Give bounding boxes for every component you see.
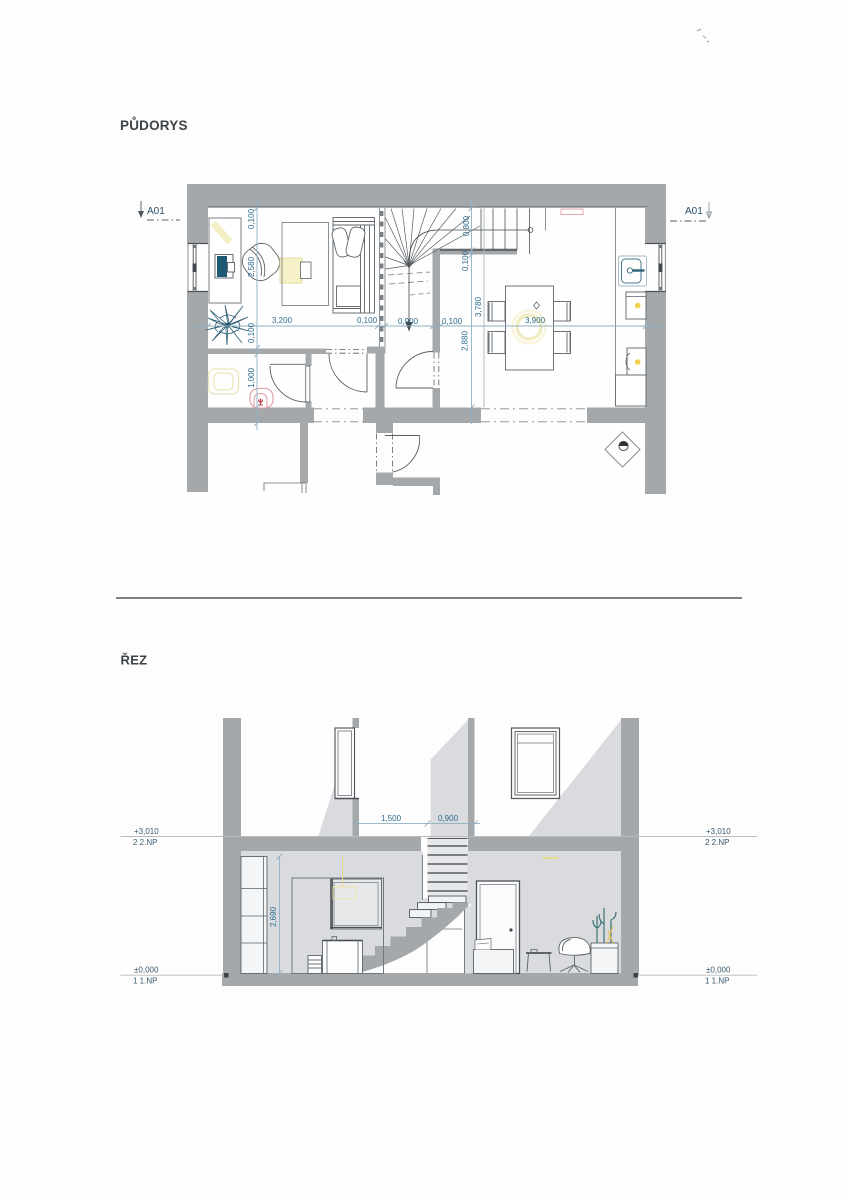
svg-text:A01: A01: [147, 206, 165, 217]
svg-text:0,100: 0,100: [247, 208, 256, 229]
svg-text:PŮDORYS: PŮDORYS: [120, 117, 188, 133]
svg-text:1 1.NP: 1 1.NP: [133, 977, 157, 986]
svg-text:1 1.NP: 1 1.NP: [705, 977, 729, 986]
svg-text:+3,010: +3,010: [706, 827, 731, 836]
svg-text:+3,010: +3,010: [134, 827, 159, 836]
svg-text:1,000: 1,000: [247, 367, 256, 388]
svg-text:0,900: 0,900: [398, 317, 419, 326]
svg-text:2,880: 2,880: [461, 330, 470, 351]
svg-text:3,900: 3,900: [525, 316, 546, 325]
svg-text:0,900: 0,900: [438, 814, 459, 823]
svg-text:0,100: 0,100: [247, 322, 256, 343]
svg-text:±0,000: ±0,000: [134, 966, 159, 975]
svg-text:±0,000: ±0,000: [706, 966, 731, 975]
svg-text:0,100: 0,100: [461, 250, 470, 271]
svg-text:0,100: 0,100: [442, 317, 463, 326]
svg-text:2,580: 2,580: [247, 256, 256, 277]
svg-text:ŘEZ: ŘEZ: [121, 653, 148, 668]
svg-text:3,200: 3,200: [272, 316, 293, 325]
svg-text:3,780: 3,780: [474, 296, 483, 317]
svg-text:0,800: 0,800: [462, 215, 471, 236]
svg-text:A01: A01: [685, 206, 703, 217]
svg-text:2 2.NP: 2 2.NP: [705, 838, 729, 847]
svg-text:1,500: 1,500: [381, 814, 402, 823]
svg-text:2,690: 2,690: [269, 906, 278, 927]
svg-text:0,100: 0,100: [357, 316, 378, 325]
svg-text:2 2.NP: 2 2.NP: [133, 838, 157, 847]
